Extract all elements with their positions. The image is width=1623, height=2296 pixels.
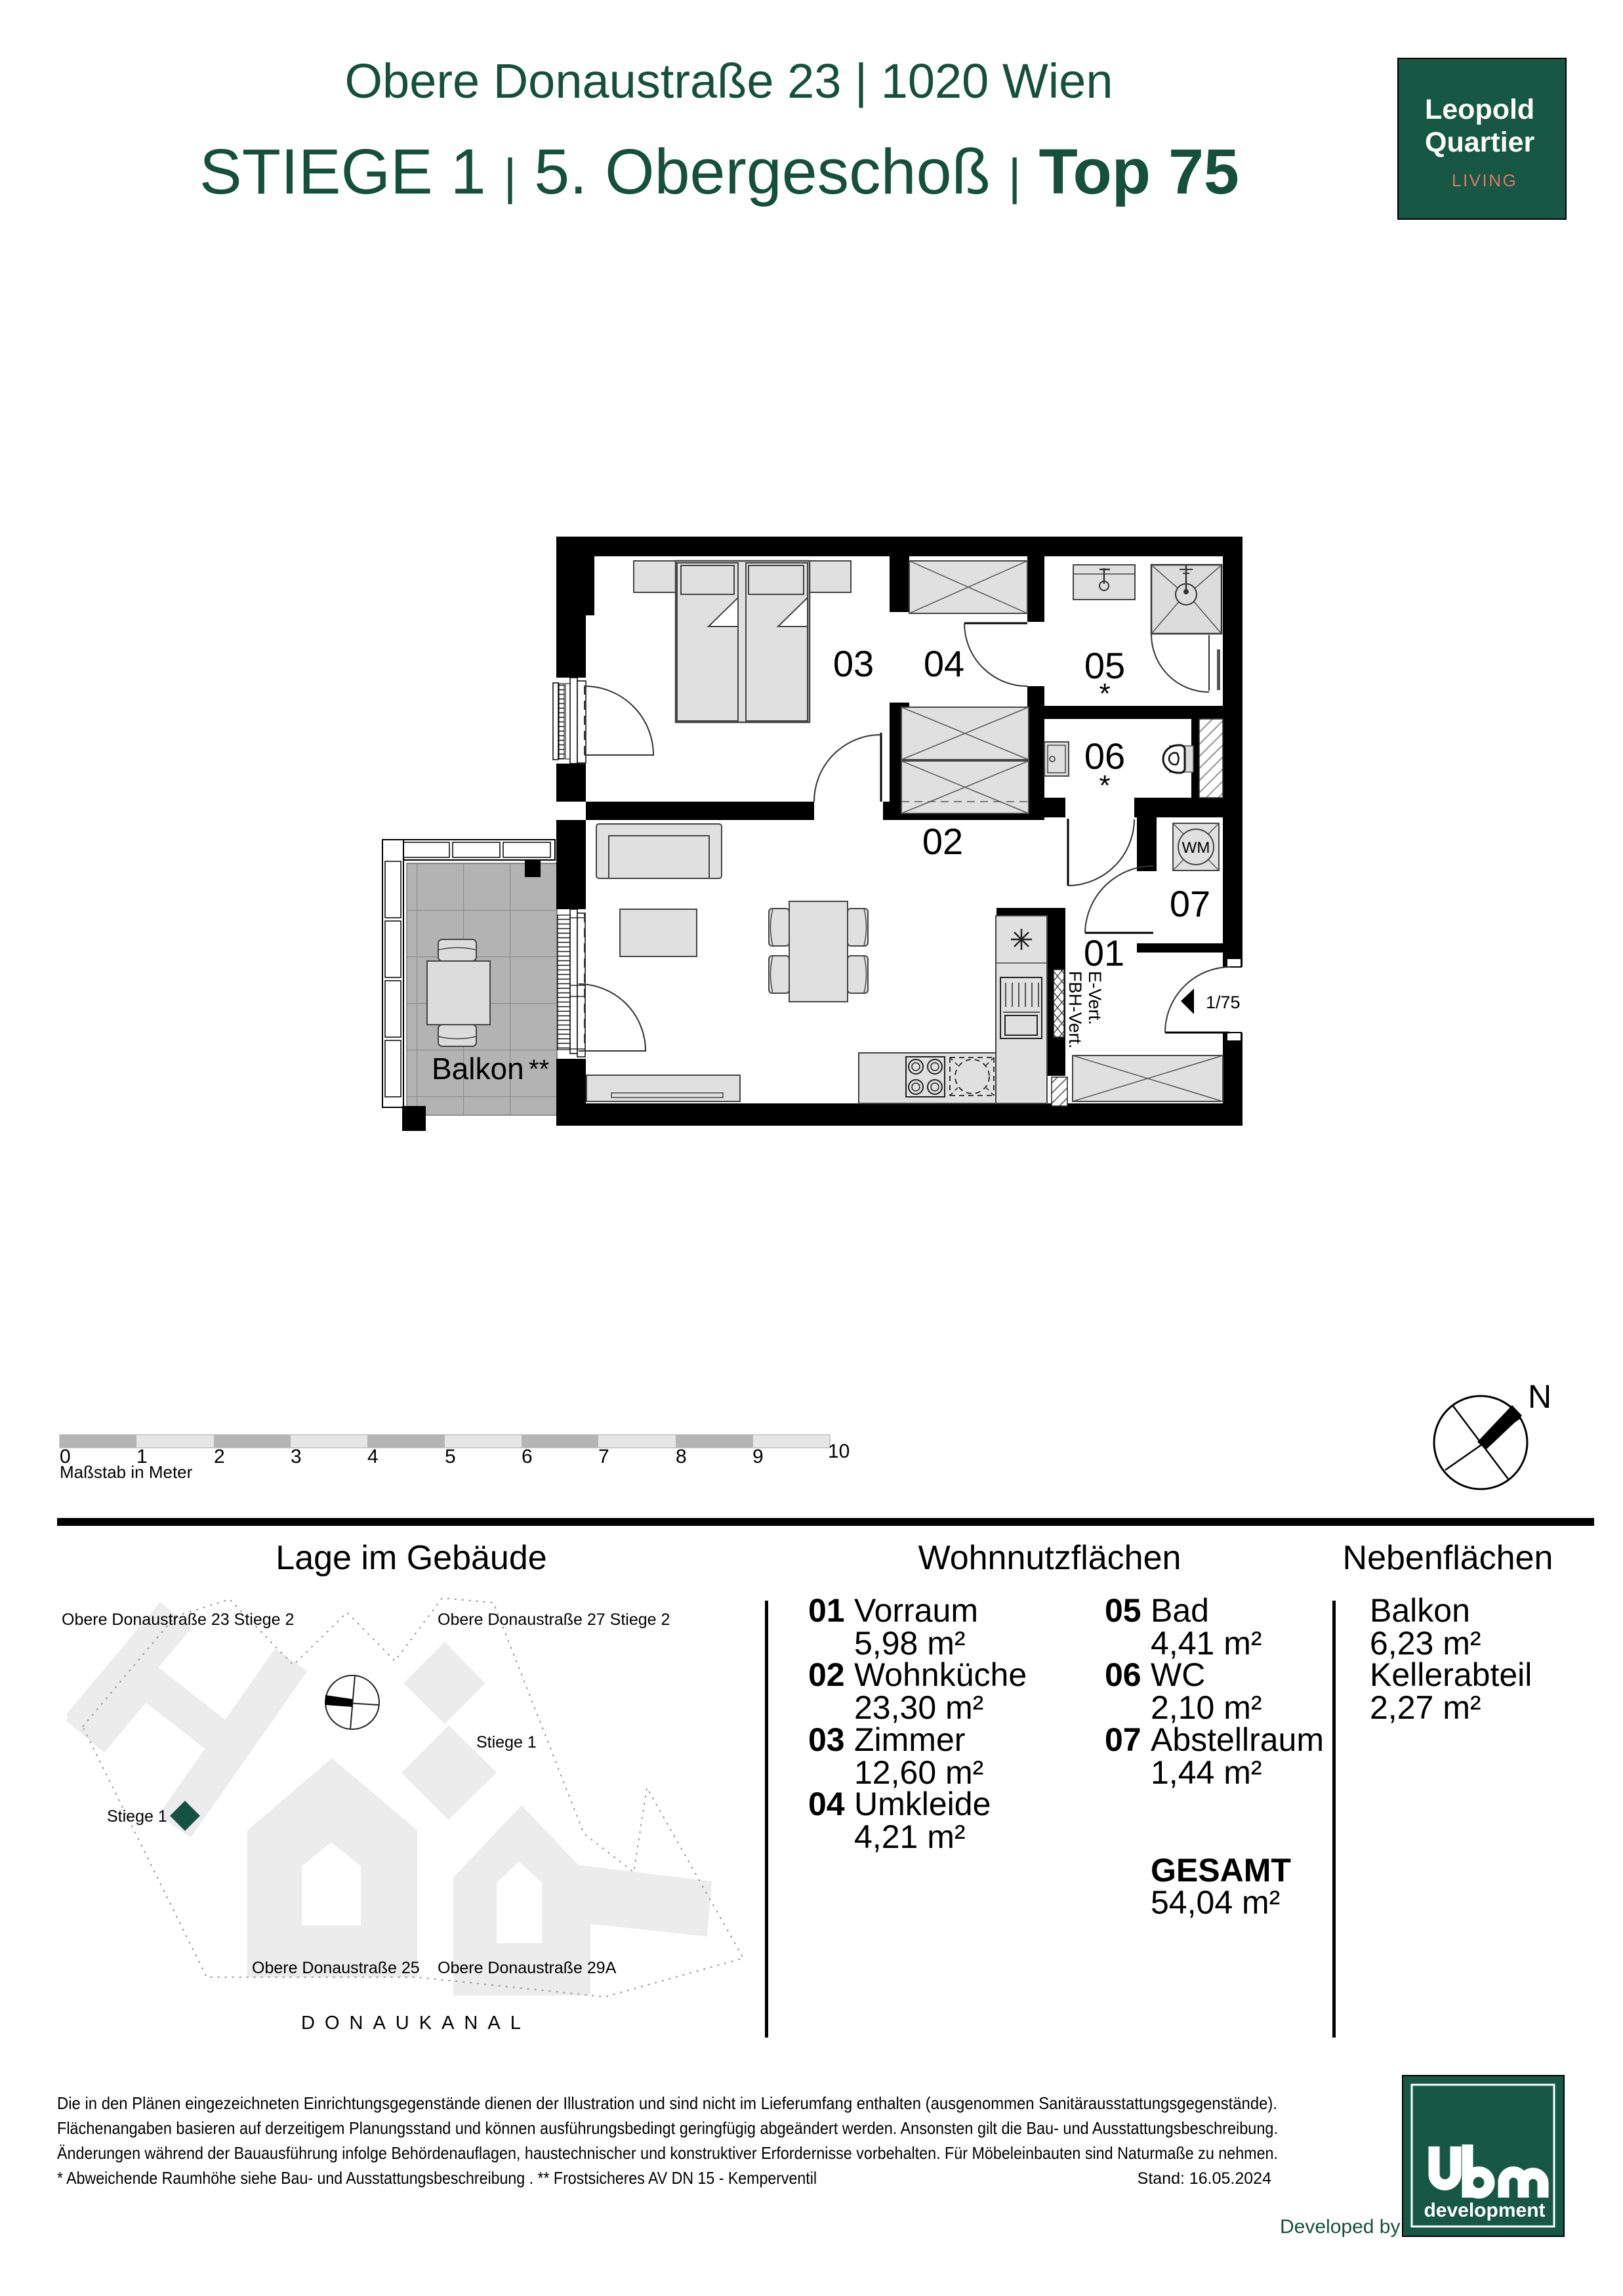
svg-text:*: * bbox=[1099, 678, 1110, 710]
svg-text:N: N bbox=[1528, 1378, 1551, 1415]
svg-text:02: 02 bbox=[922, 821, 963, 862]
svg-text:6: 6 bbox=[522, 1446, 533, 1467]
svg-text:Balkon: Balkon bbox=[1370, 1592, 1470, 1629]
svg-text:9: 9 bbox=[752, 1446, 764, 1467]
svg-text:LIVING: LIVING bbox=[1452, 171, 1517, 190]
svg-text:54,04 m²: 54,04 m² bbox=[1151, 1884, 1280, 1921]
svg-text:**: ** bbox=[529, 1055, 549, 1084]
svg-text:01: 01 bbox=[1084, 932, 1124, 974]
svg-text:Lage im Gebäude: Lage im Gebäude bbox=[276, 1539, 546, 1577]
svg-text:4,21 m²: 4,21 m² bbox=[854, 1818, 966, 1855]
svg-text:04: 04 bbox=[808, 1786, 845, 1822]
svg-text:Wohnnutzflächen: Wohnnutzflächen bbox=[918, 1539, 1181, 1577]
svg-text:2,27 m²: 2,27 m² bbox=[1370, 1689, 1481, 1726]
svg-text:Wohnküche: Wohnküche bbox=[854, 1656, 1027, 1693]
svg-text:Quartier: Quartier bbox=[1425, 127, 1535, 158]
svg-text:Zimmer: Zimmer bbox=[854, 1721, 965, 1758]
svg-text:06: 06 bbox=[1105, 1656, 1141, 1693]
svg-text:Stiege 1: Stiege 1 bbox=[476, 1733, 537, 1752]
svg-text:Balkon: Balkon bbox=[432, 1052, 524, 1086]
svg-text:1/75: 1/75 bbox=[1206, 993, 1241, 1012]
svg-text:E-Vert.: E-Vert. bbox=[1085, 971, 1105, 1025]
svg-text:2,10 m²: 2,10 m² bbox=[1151, 1689, 1262, 1726]
svg-text:7: 7 bbox=[598, 1446, 609, 1467]
svg-text:2: 2 bbox=[214, 1446, 225, 1467]
svg-text:development: development bbox=[1424, 2200, 1545, 2221]
svg-text:Leopold: Leopold bbox=[1425, 94, 1534, 125]
svg-text:1,44 m²: 1,44 m² bbox=[1151, 1754, 1262, 1791]
svg-text:07: 07 bbox=[1170, 883, 1210, 924]
svg-text:8: 8 bbox=[676, 1446, 687, 1467]
svg-text:Maßstab in Meter: Maßstab in Meter bbox=[60, 1462, 193, 1482]
svg-text:Abstellraum: Abstellraum bbox=[1151, 1721, 1324, 1758]
svg-text:23,30 m²: 23,30 m² bbox=[854, 1689, 983, 1726]
svg-text:*: * bbox=[1099, 769, 1110, 802]
svg-text:DONAUKANAL: DONAUKANAL bbox=[301, 2013, 531, 2034]
svg-text:Änderungen während der Bauausf: Änderungen während der Bauausführung inf… bbox=[57, 2143, 1278, 2163]
svg-text:Umkleide: Umkleide bbox=[854, 1786, 991, 1822]
svg-text:Vorraum: Vorraum bbox=[854, 1592, 978, 1629]
svg-text:Nebenflächen: Nebenflächen bbox=[1343, 1539, 1553, 1577]
svg-text:05: 05 bbox=[1105, 1592, 1141, 1629]
svg-text:FBH-Vert.: FBH-Vert. bbox=[1065, 971, 1085, 1049]
svg-text:STIEGE 1 | 5. Obergeschoß |: STIEGE 1 | 5. Obergeschoß | Top 75 bbox=[199, 136, 1239, 207]
svg-text:GESAMT: GESAMT bbox=[1151, 1852, 1291, 1889]
svg-text:Obere Donaustraße 25: Obere Donaustraße 25 bbox=[252, 1959, 420, 1977]
svg-text:01: 01 bbox=[808, 1592, 845, 1629]
svg-text:WC: WC bbox=[1151, 1656, 1205, 1693]
svg-text:4: 4 bbox=[367, 1446, 379, 1467]
svg-text:* Abweichende Raumhöhe siehe B: * Abweichende Raumhöhe siehe Bau- und Au… bbox=[57, 2168, 817, 2188]
svg-text:Stand: 16.05.2024: Stand: 16.05.2024 bbox=[1138, 2169, 1271, 2188]
svg-text:10: 10 bbox=[828, 1441, 850, 1462]
svg-text:Obere Donaustraße 29A: Obere Donaustraße 29A bbox=[438, 1959, 617, 1977]
svg-text:Obere Donaustraße 27 Stiege 2: Obere Donaustraße 27 Stiege 2 bbox=[438, 1610, 670, 1629]
svg-text:03: 03 bbox=[833, 643, 874, 684]
svg-text:02: 02 bbox=[808, 1656, 845, 1693]
svg-text:3: 3 bbox=[291, 1446, 302, 1467]
svg-text:Obere Donaustraße 23 | 1020 Wi: Obere Donaustraße 23 | 1020 Wien bbox=[345, 54, 1113, 108]
svg-text:5: 5 bbox=[445, 1446, 456, 1467]
svg-text:Developed by: Developed by bbox=[1280, 2216, 1400, 2238]
svg-text:Bad: Bad bbox=[1151, 1592, 1209, 1629]
svg-text:04: 04 bbox=[924, 643, 964, 684]
svg-text:Obere Donaustraße 23 Stiege 2: Obere Donaustraße 23 Stiege 2 bbox=[62, 1610, 294, 1629]
svg-text:07: 07 bbox=[1105, 1721, 1141, 1758]
svg-text:Flächenangaben basieren auf de: Flächenangaben basieren auf derzeitigem … bbox=[57, 2118, 1278, 2138]
svg-text:Die in den Plänen eingezeichne: Die in den Plänen eingezeichneten Einric… bbox=[57, 2093, 1277, 2113]
svg-text:03: 03 bbox=[808, 1721, 845, 1758]
svg-text:WM: WM bbox=[1182, 839, 1210, 857]
svg-text:Stiege 1: Stiege 1 bbox=[107, 1807, 167, 1826]
svg-text:Kellerabteil: Kellerabteil bbox=[1370, 1656, 1532, 1693]
